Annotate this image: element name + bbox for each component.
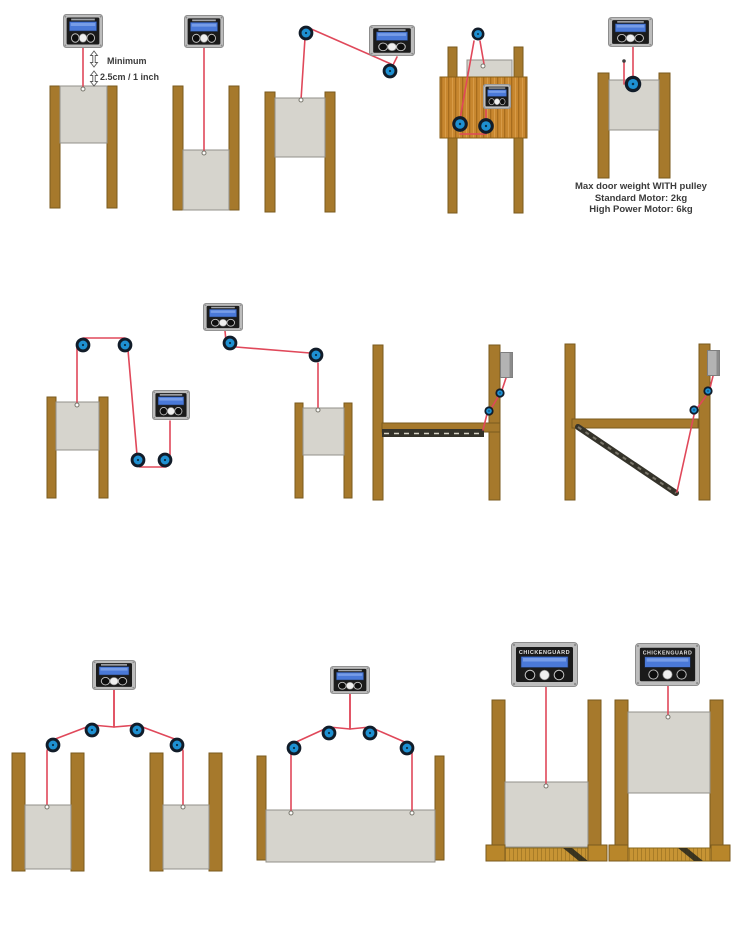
- cord-anchor-dot: [622, 59, 626, 63]
- sliding-door: [56, 402, 99, 450]
- door-post: [492, 700, 505, 848]
- pulley: [703, 386, 712, 395]
- control-unit-side: [501, 353, 513, 378]
- figure-door-side-unit-two-pulleys: [265, 25, 414, 212]
- minimum-gap-label-line1: Minimum: [107, 56, 147, 66]
- sliding-door: [163, 805, 209, 869]
- installation-diagram-sheet: ChickenGuard: [0, 0, 745, 930]
- door-post: [12, 753, 25, 871]
- door-post: [229, 86, 239, 210]
- figure-door-with-pulley-on-door: Max door weight WITH pulley Standard Mot…: [575, 17, 708, 215]
- pulley: [170, 738, 185, 753]
- sliding-door: [505, 782, 588, 847]
- cord-attachment-point: [299, 98, 303, 102]
- control-unit: [483, 84, 510, 108]
- figure-door-closed-unit-above: Minimum 2.5cm / 1 inch: [50, 15, 159, 209]
- pulley: [130, 723, 145, 738]
- door-post: [173, 86, 183, 210]
- sliding-door: [628, 712, 710, 793]
- door-post: [107, 86, 117, 208]
- door-post: [710, 700, 723, 848]
- figure-door-rear-unit-four-pulleys: [47, 338, 190, 498]
- cord: [236, 347, 310, 353]
- figure-twin-doors-single-unit: [12, 660, 222, 871]
- cord-attachment-point: [202, 151, 206, 155]
- pulley: [484, 406, 493, 415]
- pulley: [472, 28, 485, 41]
- frame-rail: [572, 419, 698, 428]
- cord-attachment-point: [45, 805, 49, 809]
- pulley: [495, 388, 504, 397]
- cord-attachment-point: [481, 64, 485, 68]
- pulley: [76, 338, 91, 353]
- post-foot: [588, 845, 607, 861]
- pulley: [400, 741, 415, 756]
- control-unit: [512, 643, 578, 687]
- figure-ramp-door-lowered: [565, 344, 720, 500]
- figure-framed-door-open: [609, 643, 730, 861]
- door-post: [615, 700, 628, 848]
- door-post: [265, 92, 275, 212]
- post-foot: [486, 845, 505, 861]
- control-unit: [203, 303, 242, 330]
- max-weight-label-line3: High Power Motor: 6kg: [589, 204, 693, 215]
- door-post: [71, 753, 84, 871]
- cord: [393, 57, 397, 65]
- pulley: [46, 738, 61, 753]
- door-post: [99, 397, 108, 498]
- sliding-door: [25, 805, 71, 869]
- row-3: [12, 643, 730, 872]
- cord: [291, 694, 350, 813]
- pulley: [309, 348, 324, 363]
- figure-door-offset-unit-two-pulleys: [203, 303, 352, 498]
- control-unit: [370, 25, 415, 55]
- wide-sliding-door: [266, 810, 435, 862]
- row-2: [47, 303, 720, 500]
- sliding-door: [275, 98, 325, 157]
- door-post: [150, 753, 163, 871]
- pulley: [625, 76, 642, 93]
- cord-attachment-point: [666, 715, 670, 719]
- sliding-door: [60, 86, 107, 143]
- double-arrow-icon: [91, 51, 98, 67]
- pulley: [131, 453, 146, 468]
- cord: [502, 378, 506, 390]
- sliding-door: [303, 408, 344, 455]
- control-unit-side: [708, 351, 720, 376]
- row-1: Minimum 2.5cm / 1 inch: [50, 15, 708, 216]
- pulley: [363, 726, 378, 741]
- post-foot: [711, 845, 730, 861]
- pulley: [118, 338, 133, 353]
- pulley: [689, 405, 698, 414]
- double-arrow-icon: [91, 71, 98, 86]
- pulley: [85, 723, 100, 738]
- figure-framed-door-closed: [486, 643, 607, 862]
- figure-door-open-unit-above: [173, 15, 239, 210]
- control-unit: [93, 660, 136, 689]
- control-unit: [609, 17, 653, 46]
- cord: [301, 38, 305, 100]
- pulley: [478, 118, 494, 134]
- pulley: [223, 336, 238, 351]
- sliding-door: [183, 150, 229, 210]
- control-unit: [635, 643, 699, 685]
- pulley: [322, 726, 337, 741]
- door-post: [588, 700, 601, 848]
- post-foot: [609, 845, 628, 861]
- control-unit: [152, 390, 189, 419]
- cord-attachment-point: [289, 811, 293, 815]
- door-post: [50, 86, 60, 208]
- door-post: [435, 756, 444, 860]
- door-post: [344, 403, 352, 498]
- max-weight-label-line1: Max door weight WITH pulley: [575, 181, 708, 192]
- pulley: [452, 116, 468, 132]
- pulley: [287, 741, 302, 756]
- door-post: [257, 756, 266, 860]
- door-post: [209, 753, 222, 871]
- control-unit: [63, 15, 102, 48]
- door-post: [295, 403, 303, 498]
- cord-attachment-point: [410, 811, 414, 815]
- cord-attachment-point: [544, 784, 548, 788]
- cord-attachment-point: [75, 403, 79, 407]
- control-unit: [184, 15, 223, 47]
- pulley: [383, 64, 398, 79]
- cord-attachment-point: [316, 408, 320, 412]
- door-post: [47, 397, 56, 498]
- pulley: [299, 26, 314, 41]
- figure-wide-door-two-lift-points: [257, 666, 444, 862]
- figure-door-wall-mounted-unit-three-pulleys: [440, 28, 527, 213]
- cord-attachment-point: [81, 87, 85, 91]
- cord-attachment-point: [181, 805, 185, 809]
- max-weight-label-line2: Standard Motor: 2kg: [595, 193, 688, 204]
- figure-ramp-door-raised: [373, 345, 513, 500]
- door-post: [659, 73, 670, 178]
- minimum-gap-label-line2: 2.5cm / 1 inch: [100, 72, 159, 82]
- door-post: [598, 73, 609, 178]
- door-post: [325, 92, 335, 212]
- pulley: [158, 453, 173, 468]
- control-unit: [330, 666, 369, 693]
